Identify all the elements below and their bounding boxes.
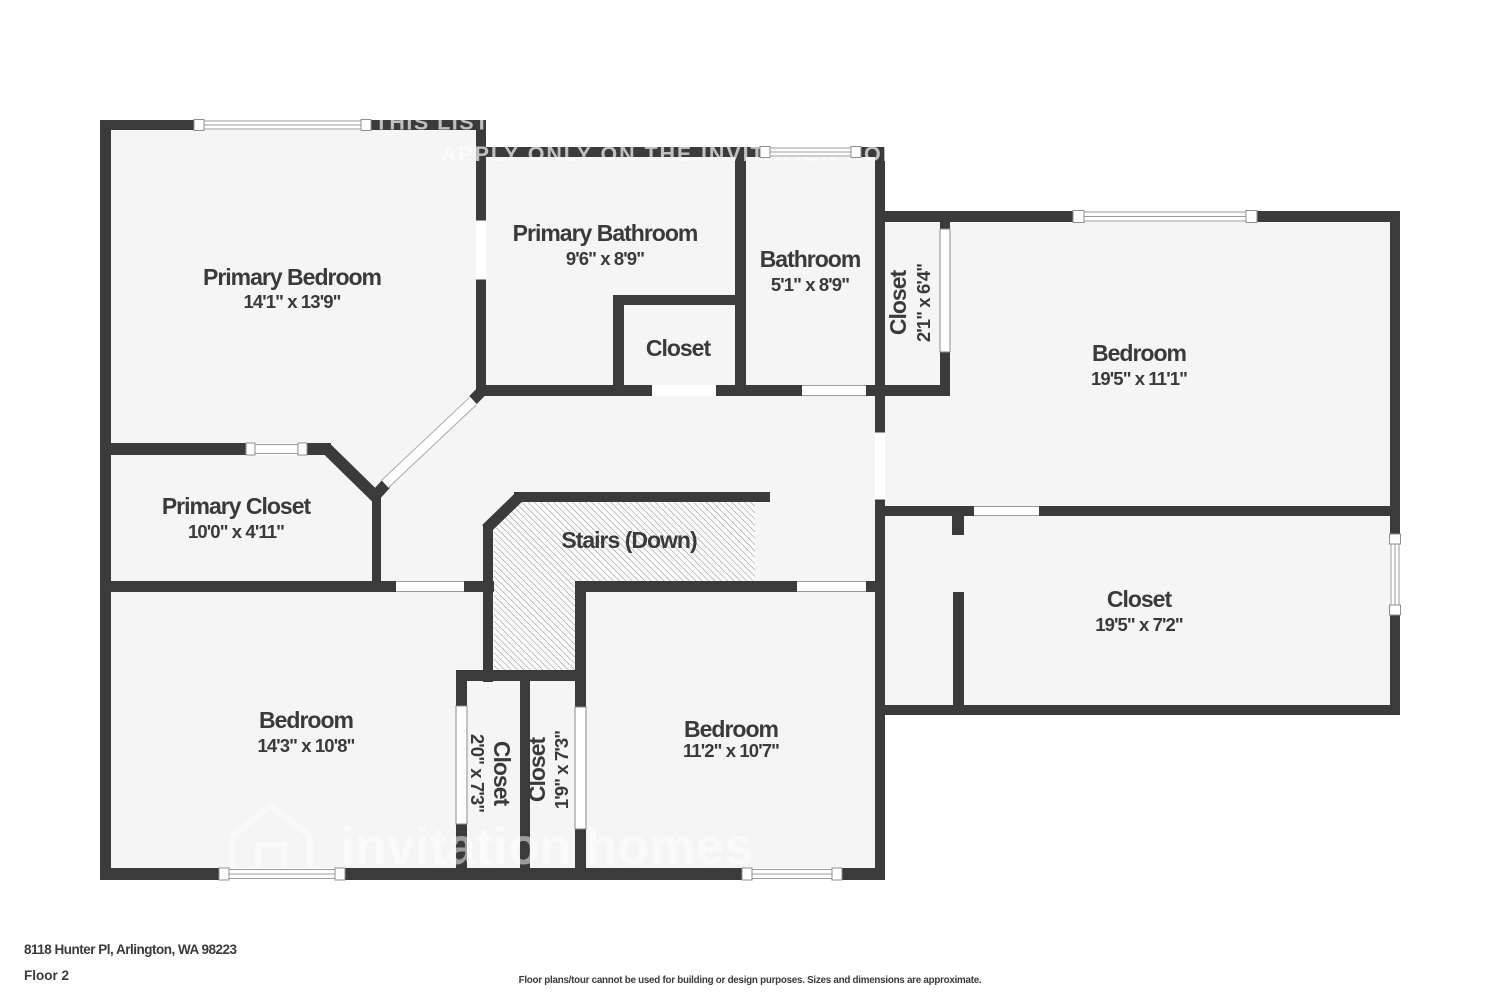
svg-text:invitation homes: invitation homes	[340, 818, 753, 876]
svg-text:2'1" x 6'4": 2'1" x 6'4"	[913, 264, 934, 342]
svg-text:Bathroom: Bathroom	[760, 246, 861, 272]
svg-text:Closet: Closet	[885, 270, 911, 336]
svg-text:Bedroom: Bedroom	[259, 707, 354, 733]
svg-text:5'1" x 8'9": 5'1" x 8'9"	[771, 274, 849, 295]
svg-text:Stairs (Down): Stairs (Down)	[561, 527, 697, 553]
svg-text:Floor 2: Floor 2	[24, 968, 69, 983]
svg-text:10'0" x 4'11": 10'0" x 4'11"	[188, 521, 284, 542]
svg-text:Bedroom: Bedroom	[684, 716, 779, 742]
svg-text:19'5" x 11'1": 19'5" x 11'1"	[1091, 368, 1187, 389]
svg-text:14'3" x 10'8": 14'3" x 10'8"	[258, 735, 355, 756]
svg-text:2'0" x 7'3": 2'0" x 7'3"	[467, 734, 488, 812]
svg-text:Closet: Closet	[1107, 586, 1173, 612]
svg-text:1'9" x 7'3": 1'9" x 7'3"	[551, 731, 572, 809]
svg-text:11'2" x 10'7": 11'2" x 10'7"	[683, 740, 779, 761]
svg-text:Closet: Closet	[646, 335, 712, 361]
svg-text:8118 Hunter Pl, Arlington, WA: 8118 Hunter Pl, Arlington, WA 98223	[24, 942, 238, 957]
svg-text:14'1" x 13'9": 14'1" x 13'9"	[244, 291, 341, 312]
svg-text:Floor plans/tour cannot be use: Floor plans/tour cannot be used for buil…	[519, 975, 982, 986]
svg-text:19'5" x 7'2": 19'5" x 7'2"	[1095, 614, 1183, 635]
svg-text:Primary Bathroom: Primary Bathroom	[513, 220, 698, 246]
svg-text:Closet: Closet	[524, 737, 550, 803]
svg-text:Closet: Closet	[489, 741, 515, 807]
svg-text:Bedroom: Bedroom	[1092, 340, 1187, 366]
svg-text:Primary Closet: Primary Closet	[162, 493, 312, 519]
svg-text:Primary Bedroom: Primary Bedroom	[203, 264, 382, 290]
svg-text:9'6" x 8'9": 9'6" x 8'9"	[566, 248, 644, 269]
